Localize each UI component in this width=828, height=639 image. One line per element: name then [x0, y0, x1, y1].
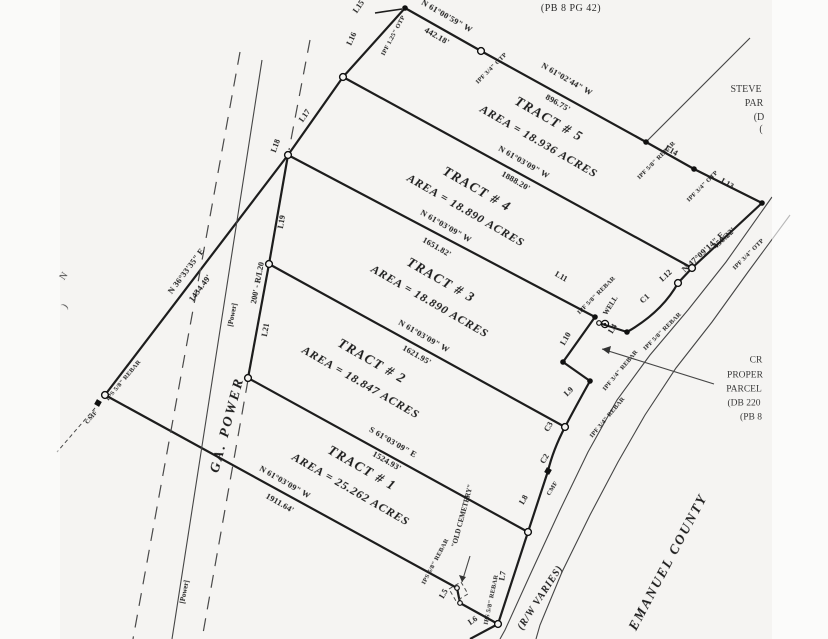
label-neighbors-cr_lines-4: (PB 8 [740, 413, 762, 423]
label-neighbors-cr_lines-1: PROPER [727, 371, 763, 381]
monument-point-10 [285, 152, 292, 159]
monument-point-5 [592, 314, 598, 320]
survey-plat-map: (PB 8 PG 42)TRACT # 5AREA = 18.936 ACRES… [0, 0, 828, 639]
label-neighbors-stevens_lines-0: STEVE [730, 85, 761, 95]
monument-point-16 [562, 424, 569, 431]
label-neighbors-stevens_lines-2: (D [754, 113, 765, 123]
monument-point-3 [759, 200, 765, 206]
monument-point-0 [402, 5, 408, 11]
monument-point-21 [458, 601, 463, 606]
boundary-line-20 [269, 155, 288, 264]
monument-point-23 [94, 399, 102, 407]
monument-point-6 [560, 359, 566, 365]
monument-point-19 [597, 321, 602, 326]
boundary-line-23 [288, 155, 595, 317]
leader-arrowhead-1 [459, 575, 466, 582]
boundary-line-26 [470, 624, 498, 639]
monument-point-1 [643, 139, 649, 145]
plat-drawing [0, 0, 828, 639]
boundary-line-16 [105, 395, 457, 588]
label-neighbors-stevens_lines-3: ( [759, 125, 762, 135]
monument-point-11 [266, 261, 273, 268]
monument-point-18 [495, 621, 502, 628]
boundary-line-11 [548, 427, 565, 471]
leader-arrowhead-0 [602, 346, 611, 354]
monument-point-20 [455, 586, 460, 591]
monument-point-17 [525, 529, 532, 536]
thin-line-27 [375, 9, 402, 13]
label-neighbors-cr_lines-2: PARCEL [726, 385, 762, 395]
monument-point-9 [340, 74, 347, 81]
boundary-line-18 [288, 77, 343, 155]
monument-point-2 [691, 166, 697, 172]
thin-line-31 [172, 60, 262, 639]
boundary-line-9 [563, 362, 590, 381]
label-plat-reference: (PB 8 PG 42) [541, 4, 601, 14]
monument-point-7 [587, 378, 593, 384]
thin-line-29 [500, 197, 772, 639]
boundary-line-12 [528, 471, 548, 532]
label-neighbors-cr_lines-0: CR [750, 356, 763, 366]
monument-point-4 [624, 329, 630, 335]
label-neighbors-stevens_lines-1: PAR [745, 99, 764, 109]
dashed-line-36 [289, 40, 310, 150]
well-symbol-center [604, 323, 606, 325]
monument-point-15 [675, 280, 682, 287]
label-neighbors-cr_lines-3: (DB 220 [728, 399, 761, 409]
dashed-line-34 [133, 52, 240, 639]
monument-point-8 [478, 48, 485, 55]
monument-point-22 [544, 467, 552, 475]
